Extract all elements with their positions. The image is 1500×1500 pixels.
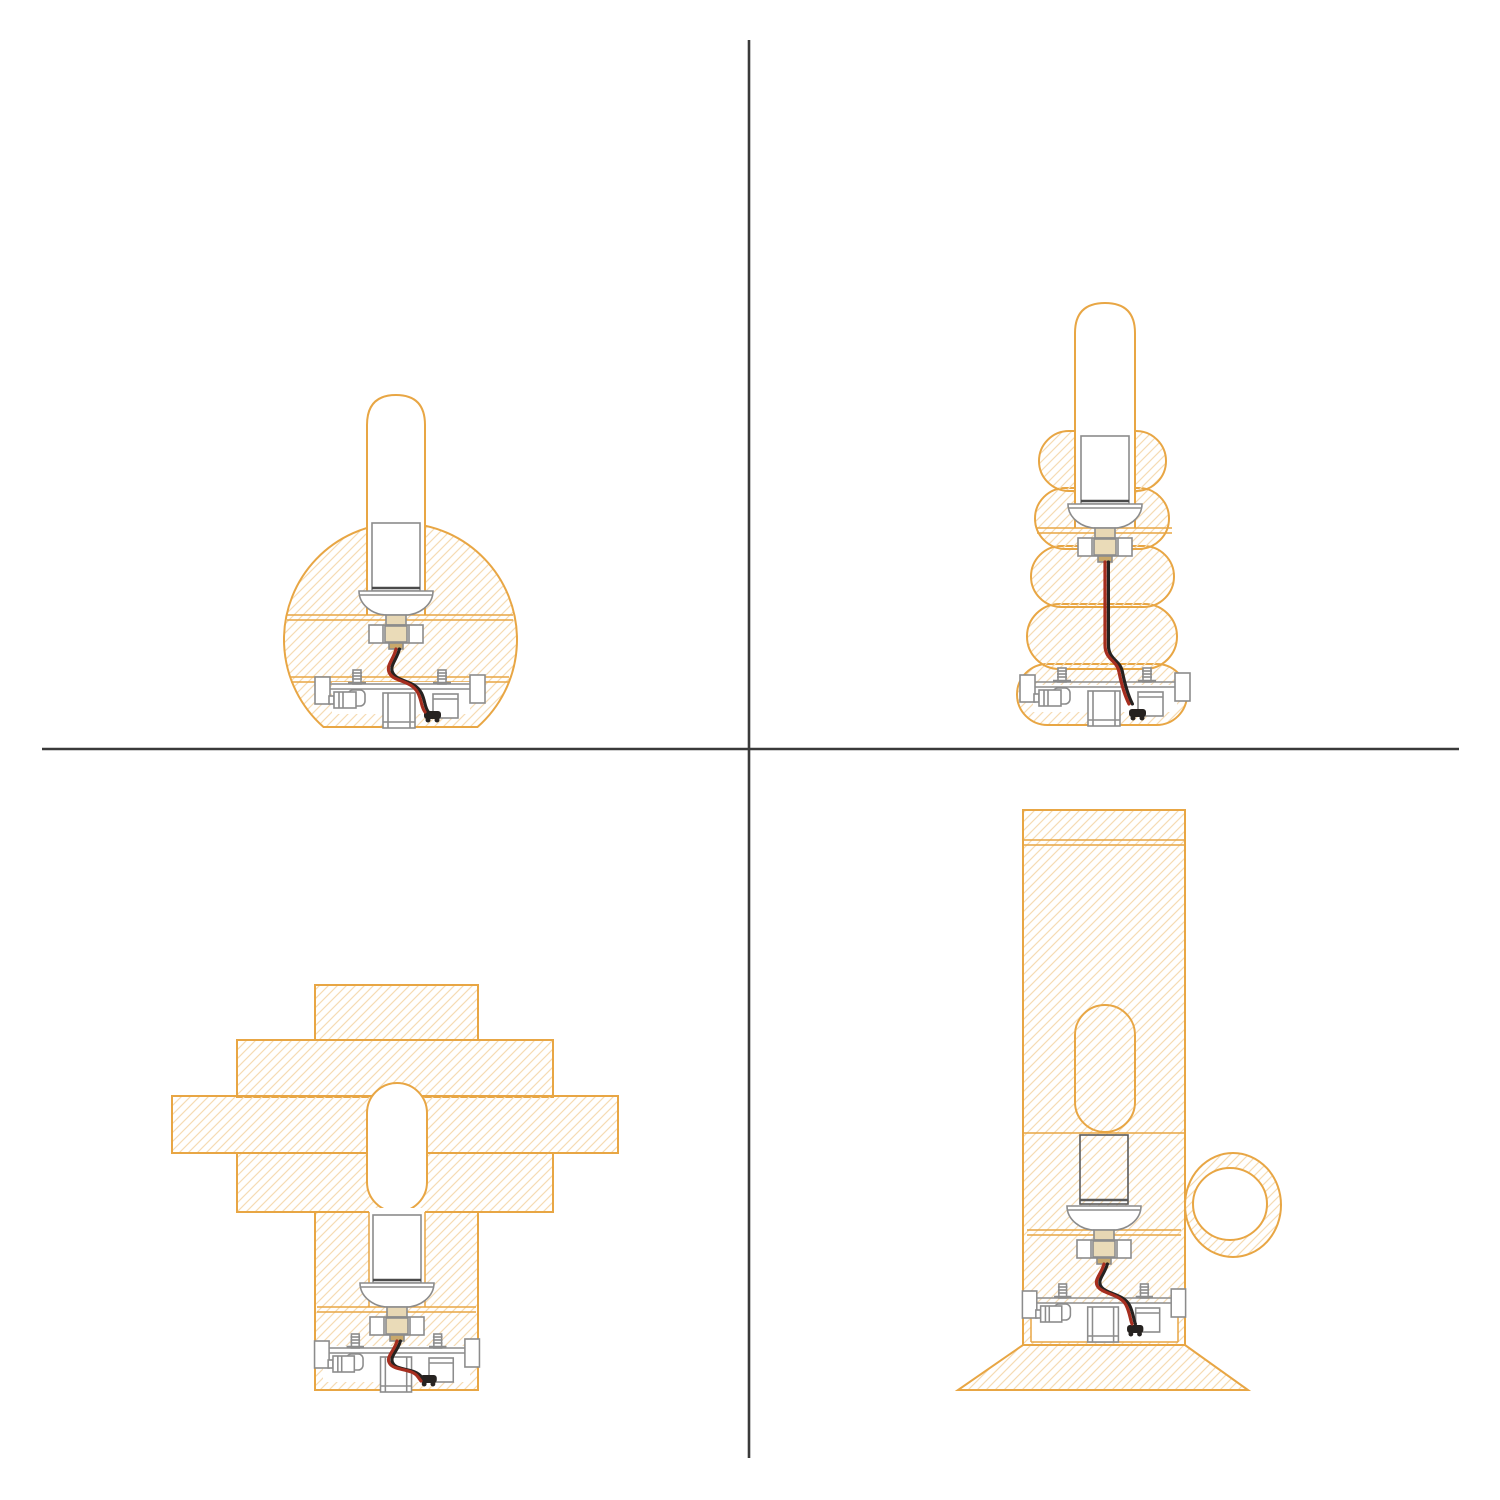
bubble-4 (1027, 604, 1177, 669)
panel-bubbles-lamp-section (1017, 303, 1190, 726)
drawing-sheet (0, 0, 1500, 1500)
panel-sphere-lamp-section (284, 395, 517, 728)
drawing-canvas (0, 0, 1500, 1500)
flared-base (958, 1345, 1248, 1390)
socket-stem (1094, 1230, 1114, 1240)
slab-1 (315, 985, 478, 1040)
ring-handle (1185, 1153, 1281, 1257)
panel-slab-lamp-section (172, 985, 618, 1392)
bulb-capsule (367, 1083, 427, 1212)
panel-cylinder-lamp-section (958, 810, 1281, 1390)
